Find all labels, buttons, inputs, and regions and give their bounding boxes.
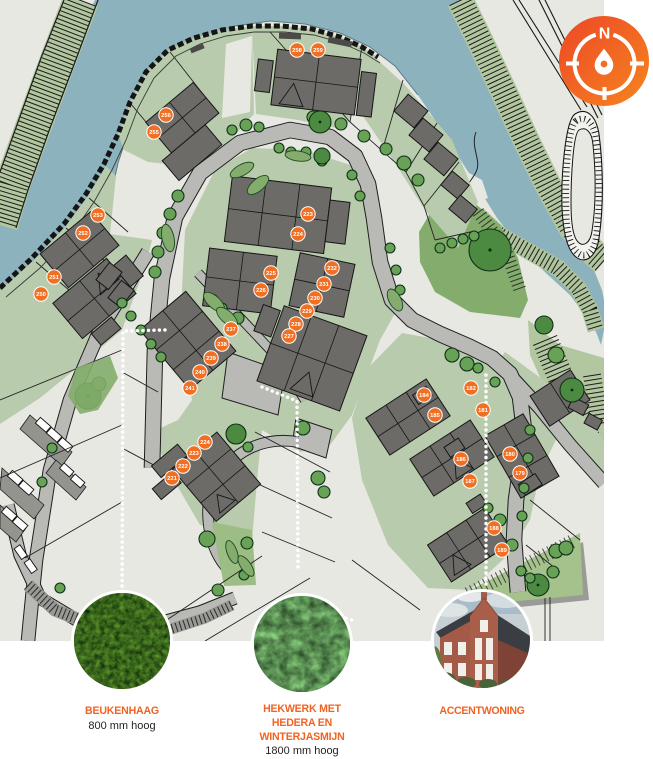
svg-text:239: 239 xyxy=(206,356,216,362)
svg-text:1800 mm hoog: 1800 mm hoog xyxy=(265,745,338,757)
svg-text:222: 222 xyxy=(178,464,188,470)
svg-text:238: 238 xyxy=(217,342,227,348)
svg-text:251: 251 xyxy=(49,275,59,281)
svg-text:252: 252 xyxy=(78,231,88,237)
svg-text:231: 231 xyxy=(319,282,329,288)
svg-text:223: 223 xyxy=(189,451,199,457)
svg-text:228: 228 xyxy=(291,322,301,328)
svg-text:184: 184 xyxy=(419,393,429,399)
svg-text:187: 187 xyxy=(465,479,475,485)
svg-text:229: 229 xyxy=(302,309,312,315)
svg-text:N: N xyxy=(599,26,611,43)
svg-text:221: 221 xyxy=(167,476,177,482)
svg-text:HEDERA EN: HEDERA EN xyxy=(272,717,332,729)
svg-text:225: 225 xyxy=(266,271,276,277)
svg-text:259: 259 xyxy=(313,48,323,54)
svg-text:189: 189 xyxy=(497,548,507,554)
svg-text:227: 227 xyxy=(284,334,294,340)
svg-text:182: 182 xyxy=(466,386,476,392)
svg-text:237: 237 xyxy=(226,327,236,333)
svg-text:224: 224 xyxy=(293,232,303,238)
svg-text:800 mm hoog: 800 mm hoog xyxy=(88,720,155,732)
svg-text:230: 230 xyxy=(310,296,320,302)
svg-text:258: 258 xyxy=(292,48,302,54)
svg-text:185: 185 xyxy=(430,413,440,419)
svg-text:253: 253 xyxy=(93,213,103,219)
svg-text:HEKWERK MET: HEKWERK MET xyxy=(263,703,342,715)
svg-text:226: 226 xyxy=(256,288,266,294)
svg-text:255: 255 xyxy=(149,130,159,136)
svg-text:250: 250 xyxy=(36,292,46,298)
svg-text:180: 180 xyxy=(505,452,515,458)
svg-text:256: 256 xyxy=(161,113,171,119)
svg-text:WINTERJASMIJN: WINTERJASMIJN xyxy=(259,731,344,743)
svg-text:BEUKENHAAG: BEUKENHAAG xyxy=(85,705,159,717)
svg-text:ACCENTWONING: ACCENTWONING xyxy=(439,705,524,717)
svg-text:241: 241 xyxy=(185,386,195,392)
svg-text:181: 181 xyxy=(478,408,488,414)
svg-text:188: 188 xyxy=(489,526,499,532)
svg-text:223: 223 xyxy=(303,212,313,218)
svg-text:179: 179 xyxy=(515,471,525,477)
svg-text:224: 224 xyxy=(200,440,210,446)
svg-text:240: 240 xyxy=(195,370,205,376)
svg-text:232: 232 xyxy=(327,266,337,272)
svg-text:186: 186 xyxy=(456,457,466,463)
